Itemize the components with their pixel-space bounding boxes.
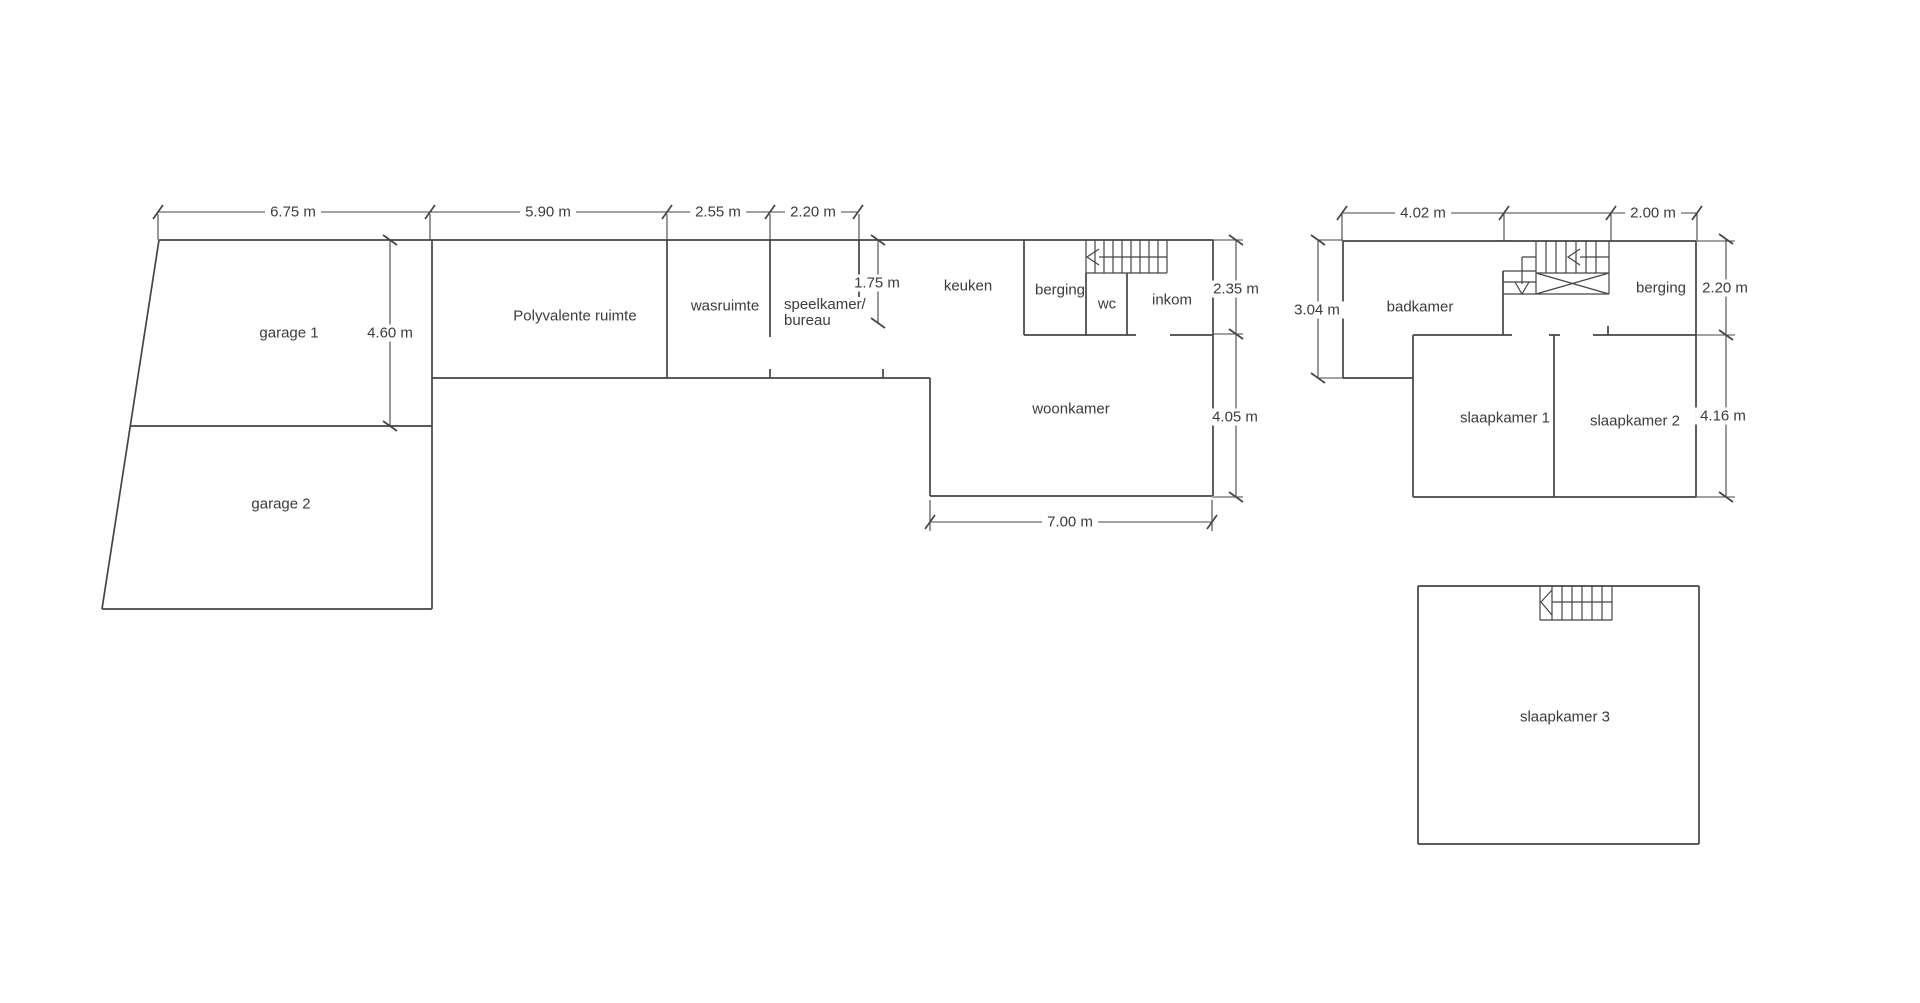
room-label-slaapkamer-3: slaapkamer 3 bbox=[1520, 709, 1610, 726]
room-label-garage-1: garage 1 bbox=[259, 325, 318, 342]
room-label-speelkamer-bureau: speelkamer/bureau bbox=[784, 297, 866, 329]
room-label-speelkamer-line1: speelkamer/ bbox=[784, 296, 866, 313]
floor-plan-canvas: garage 1 garage 2 Polyvalente ruimte was… bbox=[0, 0, 1920, 1003]
room-label-wc: wc bbox=[1098, 296, 1116, 313]
room-label-speelkamer-line2: bureau bbox=[784, 312, 831, 329]
dim-label-badkamer-depth: 3.04 m bbox=[1289, 302, 1345, 319]
first-floor-dimension-lines bbox=[1318, 213, 1735, 497]
dim-label-speelkamer-depth: 1.75 m bbox=[849, 275, 905, 292]
room-label-berging-ground: berging bbox=[1035, 282, 1085, 299]
room-label-berging-first: berging bbox=[1636, 280, 1686, 297]
room-label-slaapkamer-1: slaapkamer 1 bbox=[1460, 410, 1550, 427]
ground-floor-stair-arrow bbox=[1087, 249, 1099, 265]
room-label-garage-2: garage 2 bbox=[251, 496, 310, 513]
room-label-wasruimte: wasruimte bbox=[691, 298, 759, 315]
room-label-inkom: inkom bbox=[1152, 292, 1192, 309]
first-floor-staircase bbox=[1503, 241, 1609, 294]
dim-label-speelkamer-width: 2.20 m bbox=[785, 204, 841, 221]
first-floor-plan bbox=[1311, 206, 1735, 502]
room-label-slaapkamer-2: slaapkamer 2 bbox=[1590, 413, 1680, 430]
second-floor-stair-arrow bbox=[1541, 590, 1552, 615]
ground-floor-dimension-ticks bbox=[153, 205, 1243, 529]
dim-label-woonkamer-width: 7.00 m bbox=[1042, 514, 1098, 531]
dim-label-badkamer-width: 4.02 m bbox=[1395, 205, 1451, 222]
room-label-woonkamer: woonkamer bbox=[1032, 401, 1110, 418]
dim-label-slaapkamer-depth: 4.16 m bbox=[1695, 408, 1751, 425]
room-label-polyvalente-ruimte: Polyvalente ruimte bbox=[513, 308, 636, 325]
dim-label-berging-width: 2.00 m bbox=[1625, 205, 1681, 222]
room-label-badkamer: badkamer bbox=[1387, 299, 1454, 316]
dim-label-berging-depth: 2.20 m bbox=[1697, 280, 1753, 297]
dim-label-polyvalente-width: 5.90 m bbox=[520, 204, 576, 221]
first-floor-dimension-ticks bbox=[1311, 206, 1733, 502]
dim-label-wasruimte-width: 2.55 m bbox=[690, 204, 746, 221]
dim-label-woonkamer-depth: 4.05 m bbox=[1207, 409, 1263, 426]
ground-floor-staircase bbox=[1086, 240, 1167, 273]
room-label-keuken: keuken bbox=[944, 278, 992, 295]
dim-label-garage-width: 6.75 m bbox=[265, 204, 321, 221]
ground-floor-dimension-lines bbox=[158, 212, 1243, 531]
dim-label-garage-depth: 4.60 m bbox=[362, 325, 418, 342]
dim-label-inkom-depth: 2.35 m bbox=[1208, 281, 1264, 298]
